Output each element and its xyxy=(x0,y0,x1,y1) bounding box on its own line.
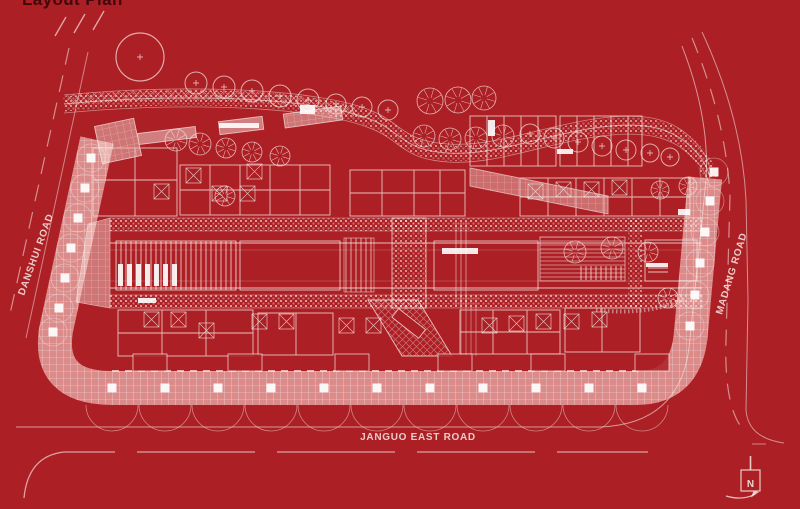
tree-pit xyxy=(214,384,223,393)
courtyard-unit-cross xyxy=(536,314,551,329)
terrace-bar-a xyxy=(138,127,197,145)
north-arrow: N xyxy=(726,456,760,498)
tree-pit xyxy=(585,384,594,393)
tree-pit xyxy=(686,322,695,331)
courtyard-unit-cross xyxy=(252,314,267,329)
courtyard-unit-cross xyxy=(482,318,497,333)
central-galleria xyxy=(76,218,702,308)
courtyard-unit-cross xyxy=(186,168,201,183)
tree-pit xyxy=(67,244,76,253)
roof-highlight xyxy=(136,264,141,286)
tree-branches-icon xyxy=(217,139,235,157)
tree-pit xyxy=(479,384,488,393)
courtyard-unit-cross xyxy=(279,314,294,329)
tree-pit xyxy=(108,384,117,393)
road-label-madang: MADANG ROAD xyxy=(714,231,749,315)
entrance-porch xyxy=(228,354,262,371)
site-plan-drawing: DANSHUI ROAD MADANG ROAD JANGUO EAST ROA… xyxy=(0,0,800,509)
roof-highlight xyxy=(442,248,478,254)
tree-pit xyxy=(373,384,382,393)
tree-pit xyxy=(267,384,276,393)
courtyard-unit-cross xyxy=(171,312,186,327)
south-block-b xyxy=(258,313,333,355)
north-arrow-letter: N xyxy=(747,479,754,490)
courtyard-unit-cross xyxy=(240,186,255,201)
roof-highlight xyxy=(678,209,690,215)
south-block-d xyxy=(565,308,640,352)
entrance-porch xyxy=(133,354,167,371)
tree-pit xyxy=(532,384,541,393)
tree-center-icon xyxy=(647,150,653,156)
block-barcode-east xyxy=(577,266,625,280)
entrance-porch xyxy=(335,354,369,371)
entrance-porch xyxy=(438,354,472,371)
roof-highlight xyxy=(154,264,159,286)
north-south-spine xyxy=(392,218,426,308)
spine-minor xyxy=(455,222,469,306)
courtyard-unit-cross xyxy=(366,318,381,333)
north-arrow-pointer xyxy=(726,494,755,498)
roof-highlight xyxy=(118,264,123,286)
north-arrow-head xyxy=(751,491,759,498)
janguo-road-centerline xyxy=(24,452,648,498)
roof-highlight xyxy=(138,298,156,303)
tree-branches-icon xyxy=(243,143,261,161)
roof-highlight xyxy=(172,264,177,286)
ornamental-tree-icon xyxy=(242,142,262,162)
tree-pit xyxy=(61,274,70,283)
tree-branches-icon xyxy=(446,88,470,112)
ornamental-tree-icon xyxy=(472,86,496,110)
courtyard-unit-cross xyxy=(199,323,214,338)
tree-pit xyxy=(55,304,64,313)
roof-highlight xyxy=(219,123,259,128)
tree-pit xyxy=(691,291,700,300)
tree-branches-icon xyxy=(473,87,495,109)
tree-pit xyxy=(320,384,329,393)
courtyard-unit-cross xyxy=(564,314,579,329)
tree-center-icon xyxy=(599,143,605,149)
ornamental-tree-icon xyxy=(270,146,290,166)
tree-pit xyxy=(701,228,710,237)
spine-east xyxy=(628,218,642,308)
layout-plan-page: Layout Plan xyxy=(0,0,800,509)
tree-center-icon xyxy=(137,54,143,60)
courtyard-unit-cross xyxy=(612,180,627,195)
block-striped-mid xyxy=(344,238,374,292)
roof-highlight xyxy=(300,105,315,114)
danshui-road-dashes xyxy=(55,11,104,36)
courtyard-unit-cross xyxy=(509,316,524,331)
tree-branches-icon xyxy=(418,89,442,113)
tree-pit xyxy=(638,384,647,393)
tree-center-icon xyxy=(193,80,199,86)
block-slab-a xyxy=(240,241,340,290)
courtyard-unit-cross xyxy=(154,184,169,199)
courtyard-unit-cross xyxy=(144,312,159,327)
diagonal-walkway xyxy=(470,168,608,214)
tree-center-icon xyxy=(667,154,673,160)
road-label-janguo-east: JANGUO EAST ROAD xyxy=(360,432,476,443)
roof-highlight xyxy=(488,120,495,136)
entrance-porch xyxy=(635,354,669,371)
ornamental-tree-icon xyxy=(417,88,443,114)
tree-pit xyxy=(706,197,715,206)
courtyard-unit-cross xyxy=(339,318,354,333)
ornamental-tree-icon xyxy=(215,186,235,206)
roof-highlight xyxy=(145,264,150,286)
tree-center-icon xyxy=(385,107,391,113)
tree-pit xyxy=(87,154,96,163)
roof-highlight xyxy=(127,264,132,286)
roof-highlight xyxy=(646,263,668,267)
tree-pit xyxy=(161,384,170,393)
tree-pit xyxy=(696,259,705,268)
courtyard-unit-cross xyxy=(247,164,262,179)
corner-pavilion xyxy=(94,118,141,163)
roof-highlight xyxy=(557,149,573,154)
tree-pit xyxy=(426,384,435,393)
courtyard-unit-cross xyxy=(592,312,607,327)
ornamental-tree-icon xyxy=(216,138,236,158)
tree-pit xyxy=(81,184,90,193)
ornamental-tree-icon xyxy=(189,133,211,155)
tree-branches-icon xyxy=(271,147,289,165)
roof-highlight xyxy=(163,264,168,286)
entrance-porch xyxy=(531,354,565,371)
tree-pit xyxy=(710,168,719,177)
tree-pit xyxy=(49,328,58,337)
ornamental-tree-icon xyxy=(445,87,471,113)
tree-pit xyxy=(74,214,83,223)
